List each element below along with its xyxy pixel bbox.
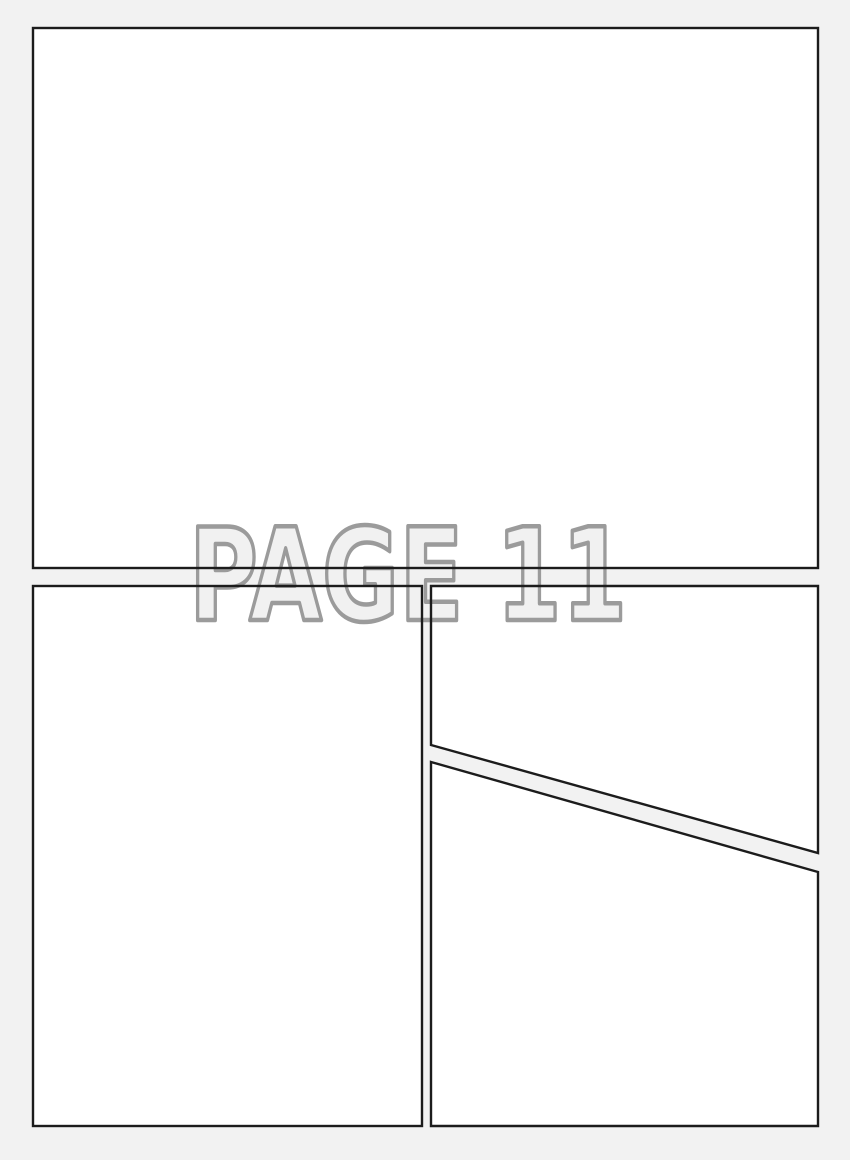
top-panel xyxy=(33,28,818,568)
comic-page-template: PAGE 11 xyxy=(0,0,850,1160)
page-number-label: PAGE 11 xyxy=(189,502,627,651)
bottom-left-panel xyxy=(33,586,422,1126)
comic-page-canvas: PAGE 11 xyxy=(0,0,850,1160)
